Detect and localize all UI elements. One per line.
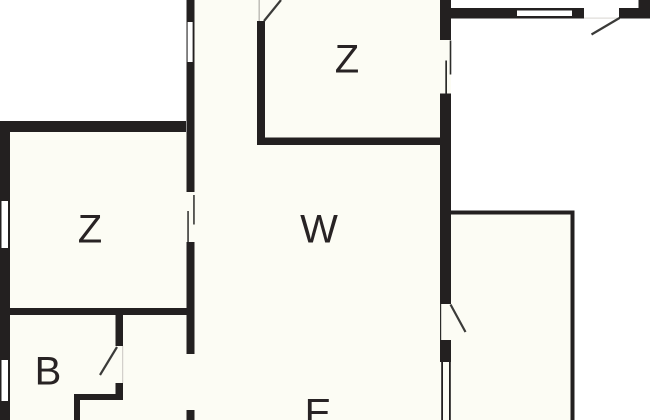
svg-text:B: B xyxy=(35,349,62,393)
svg-text:W: W xyxy=(300,207,338,251)
svg-text:E: E xyxy=(305,391,332,420)
svg-text:Z: Z xyxy=(335,37,359,81)
svg-text:Z: Z xyxy=(78,207,102,251)
